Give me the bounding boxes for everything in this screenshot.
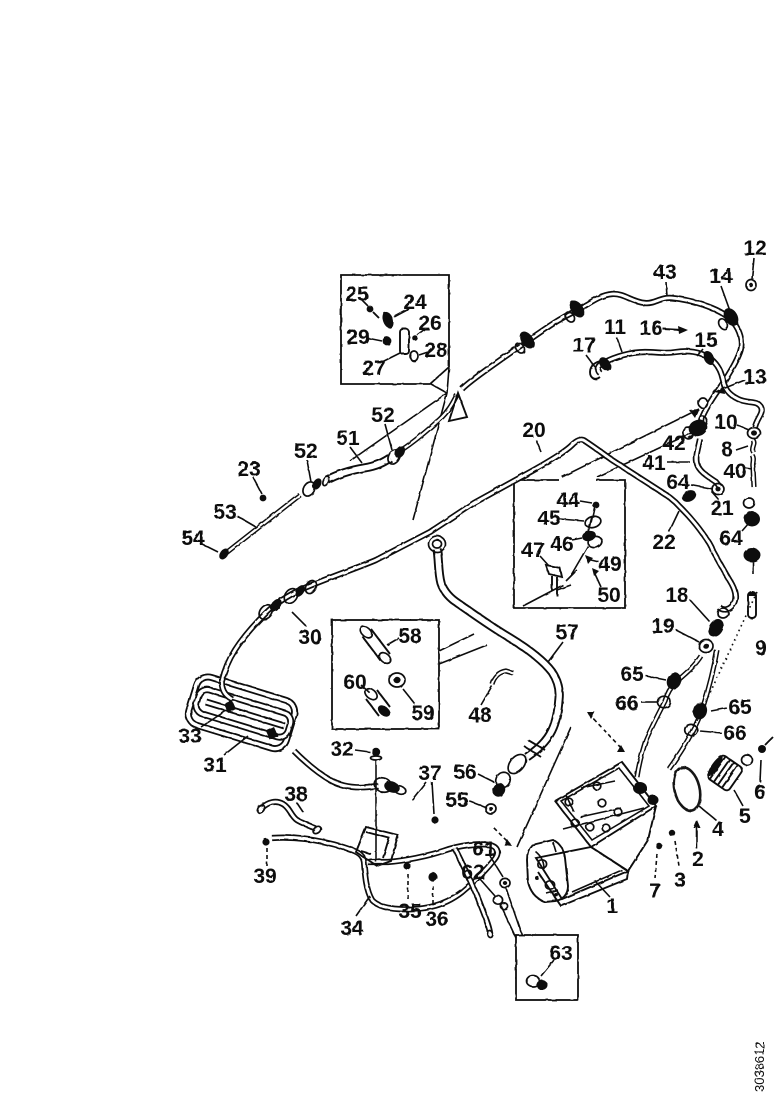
svg-text:27: 27 <box>362 357 385 380</box>
svg-text:51: 51 <box>336 427 360 450</box>
svg-text:50: 50 <box>597 584 620 607</box>
svg-text:39: 39 <box>253 865 276 888</box>
svg-text:45: 45 <box>537 507 561 530</box>
svg-text:60: 60 <box>343 671 366 694</box>
svg-text:16: 16 <box>639 317 662 340</box>
svg-text:12: 12 <box>743 237 766 260</box>
svg-text:43: 43 <box>653 261 676 284</box>
svg-text:66: 66 <box>615 692 638 715</box>
svg-text:3038612: 3038612 <box>752 1041 767 1092</box>
svg-text:22: 22 <box>652 531 675 554</box>
svg-text:18: 18 <box>665 584 689 607</box>
svg-text:56: 56 <box>453 761 476 784</box>
svg-text:49: 49 <box>598 553 621 576</box>
svg-text:61: 61 <box>472 838 496 861</box>
svg-text:36: 36 <box>425 908 448 931</box>
svg-text:11: 11 <box>604 316 627 339</box>
svg-text:7: 7 <box>649 880 661 903</box>
svg-text:35: 35 <box>398 900 422 923</box>
svg-text:13: 13 <box>743 366 766 389</box>
svg-text:65: 65 <box>620 663 644 686</box>
svg-text:25: 25 <box>345 283 369 306</box>
svg-text:17: 17 <box>572 334 595 357</box>
svg-text:10: 10 <box>714 411 737 434</box>
svg-text:1: 1 <box>606 895 618 918</box>
svg-text:62: 62 <box>461 861 484 884</box>
svg-text:52: 52 <box>371 404 394 427</box>
svg-text:29: 29 <box>346 326 369 349</box>
svg-text:20: 20 <box>522 419 545 442</box>
svg-text:9: 9 <box>755 637 767 660</box>
svg-text:58: 58 <box>398 625 422 648</box>
svg-text:41: 41 <box>642 452 666 475</box>
svg-text:48: 48 <box>468 704 492 727</box>
svg-text:66: 66 <box>723 722 746 745</box>
svg-text:28: 28 <box>424 339 448 362</box>
svg-text:26: 26 <box>418 312 441 335</box>
svg-text:55: 55 <box>445 789 469 812</box>
svg-text:40: 40 <box>723 460 746 483</box>
svg-text:23: 23 <box>237 458 260 481</box>
svg-text:38: 38 <box>284 783 308 806</box>
svg-text:64: 64 <box>666 471 690 494</box>
svg-text:8: 8 <box>721 438 733 461</box>
svg-text:37: 37 <box>418 762 441 785</box>
svg-text:33: 33 <box>178 725 201 748</box>
svg-text:5: 5 <box>739 805 751 828</box>
svg-text:31: 31 <box>203 754 227 777</box>
svg-text:19: 19 <box>651 615 674 638</box>
svg-text:24: 24 <box>403 291 427 314</box>
svg-text:6: 6 <box>754 781 766 804</box>
svg-text:65: 65 <box>728 696 752 719</box>
svg-text:4: 4 <box>712 818 724 841</box>
svg-text:3: 3 <box>674 869 686 892</box>
svg-text:52: 52 <box>294 440 317 463</box>
svg-text:53: 53 <box>213 501 236 524</box>
svg-text:15: 15 <box>694 329 718 352</box>
svg-text:34: 34 <box>340 917 364 940</box>
svg-text:42: 42 <box>662 432 685 455</box>
svg-text:30: 30 <box>298 626 321 649</box>
svg-text:57: 57 <box>555 621 578 644</box>
svg-text:21: 21 <box>710 497 734 520</box>
svg-text:59: 59 <box>411 702 434 725</box>
svg-text:54: 54 <box>181 527 205 550</box>
svg-text:2: 2 <box>692 848 704 871</box>
svg-text:47: 47 <box>521 539 544 562</box>
svg-text:64: 64 <box>719 527 743 550</box>
svg-text:32: 32 <box>330 738 353 761</box>
svg-text:46: 46 <box>550 533 573 556</box>
svg-text:14: 14 <box>709 265 733 288</box>
svg-text:63: 63 <box>549 942 572 965</box>
